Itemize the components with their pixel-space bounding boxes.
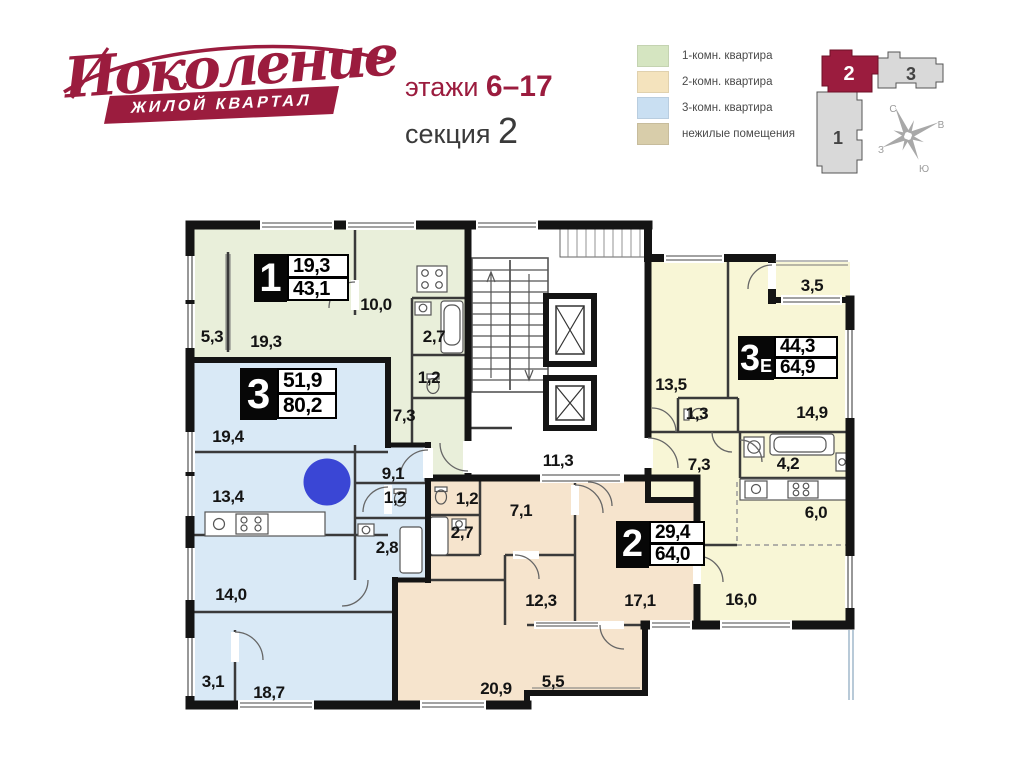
compass-rose-icon: С В З Ю (869, 93, 949, 175)
apartment-area-total: 80,2 (277, 394, 337, 419)
apartment-tag-2: 2 29,4 64,0 (616, 521, 705, 568)
apartment-area-total: 43,1 (287, 278, 349, 301)
apartment-area-total: 64,9 (774, 358, 838, 379)
apartment-number: 3Е (738, 336, 774, 380)
apartment-area-living: 51,9 (277, 368, 337, 394)
minimap-label-3: 3 (906, 64, 916, 84)
apartment-area-living: 19,3 (287, 254, 349, 278)
apartment-number: 1 (254, 254, 287, 302)
apartment-tag-1: 1 19,3 43,1 (254, 254, 349, 302)
compass-north: С (889, 104, 896, 115)
floorplan-page: Поколение ЖИЛОЙ КВАРТАЛ этажи 6–17 секци… (0, 0, 1024, 768)
apartment-tag-3e: 3Е 44,3 64,9 (738, 336, 838, 380)
minimap-label-2: 2 (843, 63, 854, 85)
apartment-tag-3: 3 51,9 80,2 (240, 368, 337, 420)
minimap: 2 3 1 С В З Ю (0, 0, 1024, 768)
compass-east: В (938, 120, 945, 131)
apartment-area-living: 29,4 (649, 521, 705, 544)
apartment-area-living: 44,3 (774, 336, 838, 358)
minimap-label-1: 1 (833, 128, 843, 148)
compass-west: З (878, 145, 884, 156)
apartment-number: 2 (616, 521, 649, 568)
compass-south: Ю (919, 164, 929, 175)
apartment-number: 3 (240, 368, 277, 420)
apartment-area-total: 64,0 (649, 544, 705, 566)
